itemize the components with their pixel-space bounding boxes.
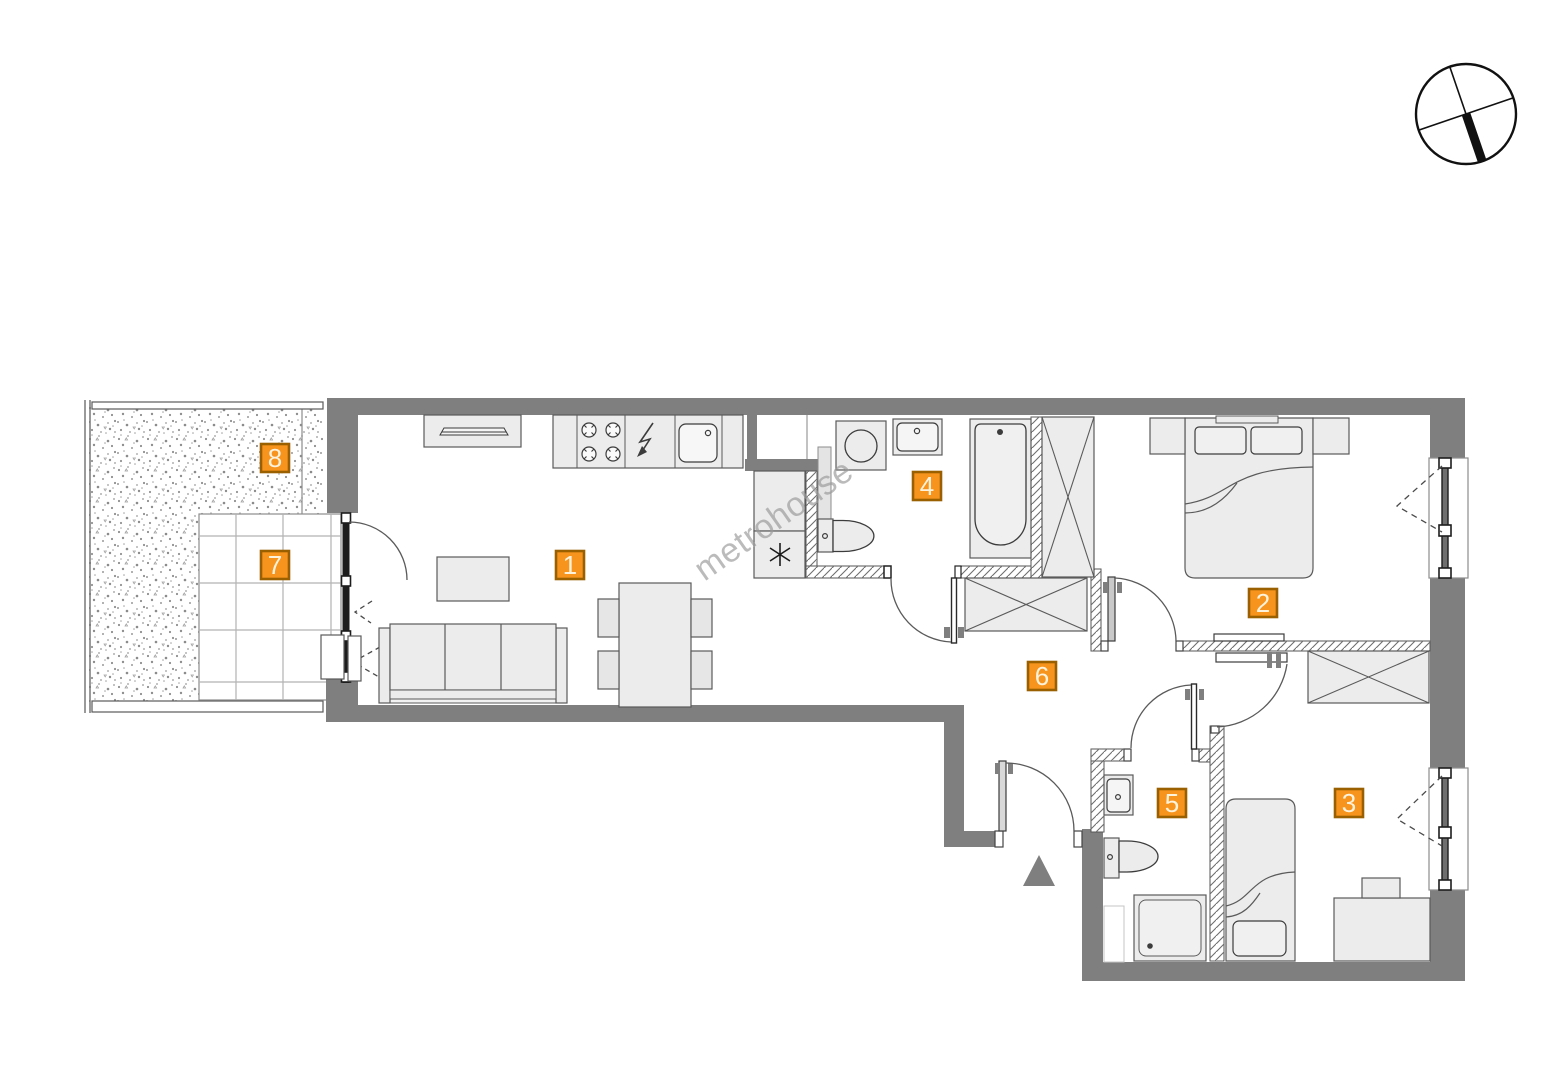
- svg-text:4: 4: [920, 471, 934, 501]
- svg-text:8: 8: [268, 443, 282, 473]
- svg-text:6: 6: [1035, 661, 1049, 691]
- svg-text:7: 7: [268, 550, 282, 580]
- svg-text:3: 3: [1342, 788, 1356, 818]
- svg-text:1: 1: [563, 550, 577, 580]
- svg-text:2: 2: [1256, 588, 1270, 618]
- svg-text:5: 5: [1165, 788, 1179, 818]
